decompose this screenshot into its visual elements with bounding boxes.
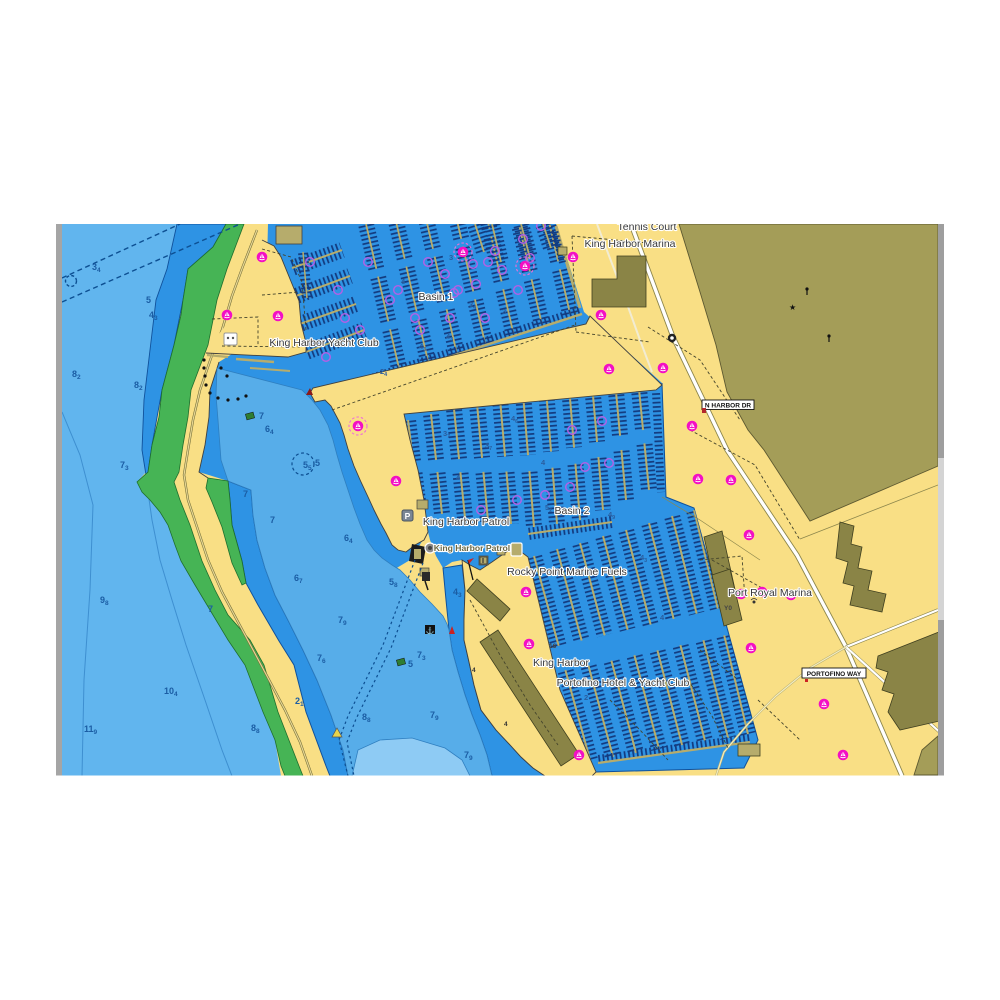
- svg-text:7: 7: [208, 604, 213, 614]
- svg-text:Basin 2: Basin 2: [554, 505, 589, 517]
- svg-text:PORTOFINO WAY: PORTOFINO WAY: [807, 671, 862, 678]
- svg-text:5: 5: [146, 295, 151, 305]
- svg-text:16: 16: [549, 643, 557, 650]
- svg-text:King Harbor: King Harbor: [533, 657, 590, 669]
- svg-text:2: 2: [584, 693, 588, 702]
- svg-text:Port Royal Marina: Port Royal Marina: [728, 587, 812, 599]
- svg-text:4: 4: [504, 721, 508, 728]
- svg-text:King Harbor Yacht Club: King Harbor Yacht Club: [269, 337, 378, 349]
- svg-text:King Harbor Patrol: King Harbor Patrol: [423, 516, 509, 528]
- svg-text:P: P: [405, 511, 411, 521]
- svg-text:3: 3: [449, 253, 453, 262]
- svg-text:Y0: Y0: [724, 605, 732, 612]
- svg-text:⚓: ⚓: [426, 626, 435, 635]
- svg-text:N HARBOR DR: N HARBOR DR: [705, 403, 752, 410]
- svg-text:King Harbor Marina: King Harbor Marina: [584, 238, 675, 250]
- svg-text:7: 7: [259, 411, 264, 421]
- svg-text:Portofino Hotel & Yacht Club: Portofino Hotel & Yacht Club: [557, 677, 690, 689]
- svg-text:4: 4: [472, 667, 476, 674]
- svg-text:7: 7: [243, 489, 248, 499]
- svg-text:Basin 1: Basin 1: [418, 291, 453, 303]
- svg-text:5: 5: [408, 659, 413, 669]
- svg-text:3: 3: [502, 307, 506, 316]
- svg-text:★: ★: [789, 303, 796, 312]
- svg-text:7: 7: [270, 515, 275, 525]
- svg-text:5: 5: [315, 458, 320, 468]
- svg-text:King Harbor Patrol: King Harbor Patrol: [434, 543, 510, 553]
- svg-text:Rocky Point Marine Fuels: Rocky Point Marine Fuels: [507, 566, 627, 578]
